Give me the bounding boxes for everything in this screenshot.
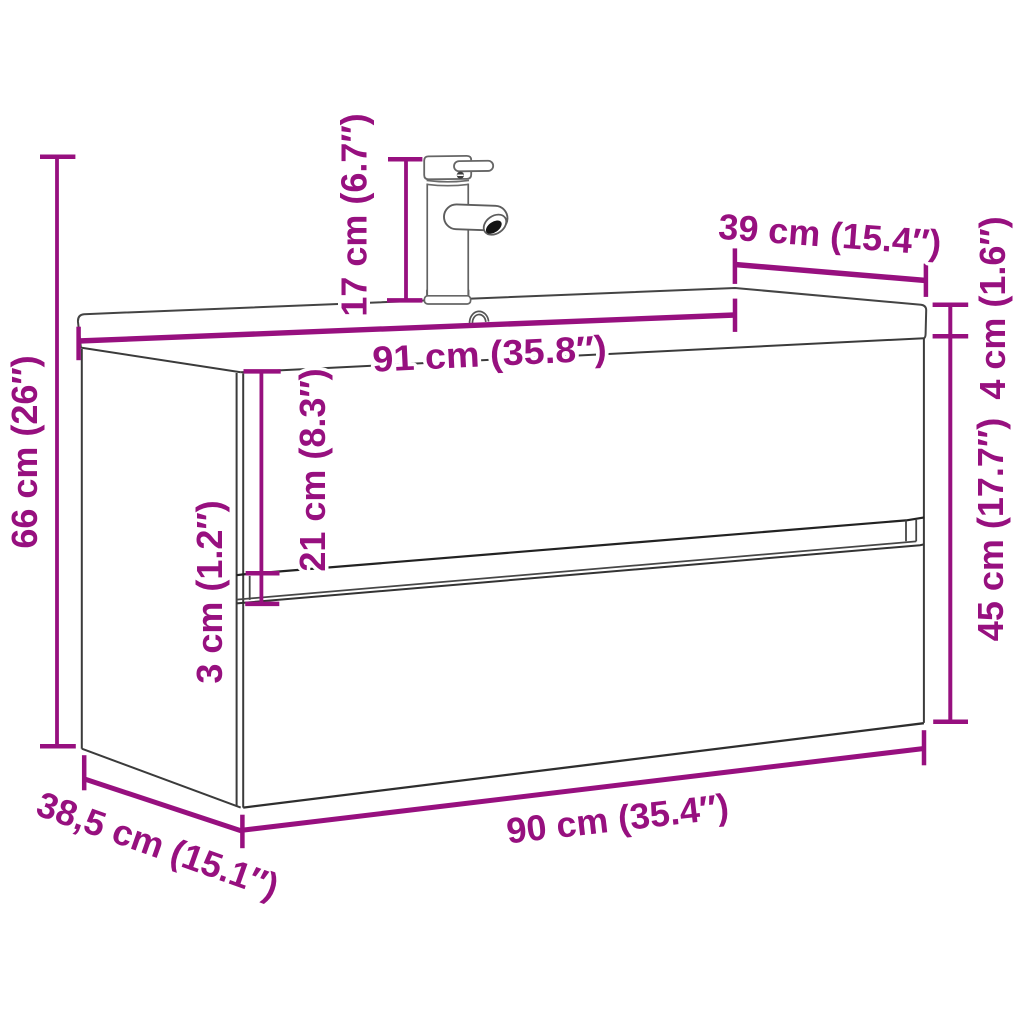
- svg-text:3 cm (1.2″): 3 cm (1.2″): [189, 500, 230, 683]
- svg-text:21 cm (8.3″): 21 cm (8.3″): [292, 368, 333, 571]
- svg-text:45 cm (17.7″): 45 cm (17.7″): [970, 418, 1011, 641]
- svg-text:4 cm (1.6″): 4 cm (1.6″): [972, 216, 1013, 399]
- svg-text:17 cm (6.7″): 17 cm (6.7″): [334, 113, 375, 316]
- svg-text:66 cm (26″): 66 cm (26″): [4, 355, 45, 548]
